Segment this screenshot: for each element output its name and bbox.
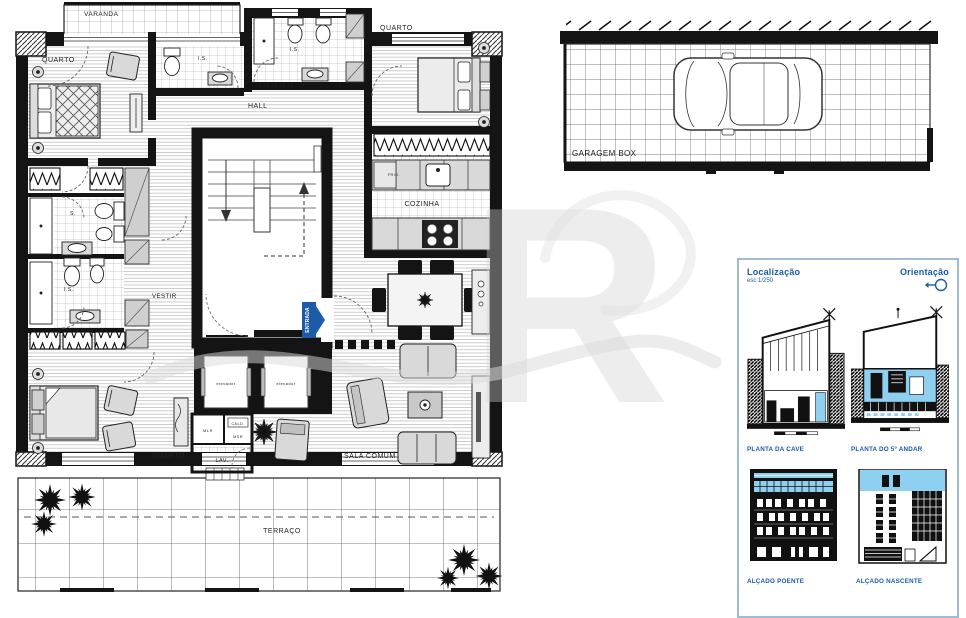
mini-plans: PLANTA DA CAVE [747,305,949,453]
elevator-right-label: elevador [276,381,296,386]
msr-label: MSR [233,435,243,439]
planta-andar-drawing [851,305,949,437]
localizacao-title: Localização [747,267,800,277]
planta-cave-label: PLANTA DA CAVE [747,446,845,453]
planta-andar-figure: PLANTA DO 5º ANDAR [851,305,949,453]
entrada-label: ENTRADA [305,307,311,333]
quarto-tr-label: QUARTO [380,25,413,32]
is-left-label: I.S. [64,287,74,293]
is-tc-label: I.S. [290,47,300,53]
lav-label: LAV. [215,458,228,464]
watermark-loop [545,195,691,311]
alcado-nascente-figure: ALÇADO NASCENTE [856,469,949,585]
orientacao-block: Orientação [900,267,949,297]
terraco-terrace: TERRAÇO [18,468,503,592]
alcado-nascente-label: ALÇADO NASCENTE [856,578,949,585]
quarto-tl-label: QUARTO [42,57,75,64]
mlr-label: MLR [203,428,213,433]
info-panel: Localização esc:1/250 Orientação [737,258,959,618]
s-label: S. [70,211,76,217]
elevator-left-label: elevador [216,381,236,386]
terraco-label: TERRAÇO [263,528,301,535]
orientacao-title: Orientação [900,267,949,277]
planta-cave-drawing [747,305,845,437]
elevation-drawings: ALÇADO POENTE [747,469,949,585]
panel-header: Localização esc:1/250 Orientação [747,267,949,297]
localizacao-block: Localização esc:1/250 [747,267,800,284]
planta-andar-label: PLANTA DO 5º ANDAR [851,446,949,453]
frig-label: FRIG. [388,173,401,177]
hall-label: HALL [248,103,268,110]
is-tl-label: I.S. [198,56,208,62]
alcado-poente-label: ALÇADO POENTE [747,578,840,585]
alcado-poente-figure: ALÇADO POENTE [747,469,840,585]
car-icon [674,53,822,135]
garage-plan: GARAGEM BOX [556,20,946,176]
vestir-label: VESTIR [152,294,177,300]
varanda-label: VARANDA [84,11,119,18]
quarto-bl-label: QUARTO [152,453,185,460]
cozinha-label: COZINHA [405,201,440,208]
sala-label: SALA COMUM [344,453,396,460]
compass-icon [925,277,949,292]
alcado-nascente-drawing [856,469,949,569]
scale-note: esc:1/250 [747,278,800,284]
apartment-floor-plan: VARANDA TERRAÇO [2,0,514,599]
garagem-box-label: GARAGEM BOX [572,149,637,158]
drawing-sheet: VARANDA TERRAÇO [0,0,966,599]
planta-cave-figure: PLANTA DA CAVE [747,305,845,453]
cald-label: CALD. [231,422,244,426]
alcado-poente-drawing [747,469,840,569]
